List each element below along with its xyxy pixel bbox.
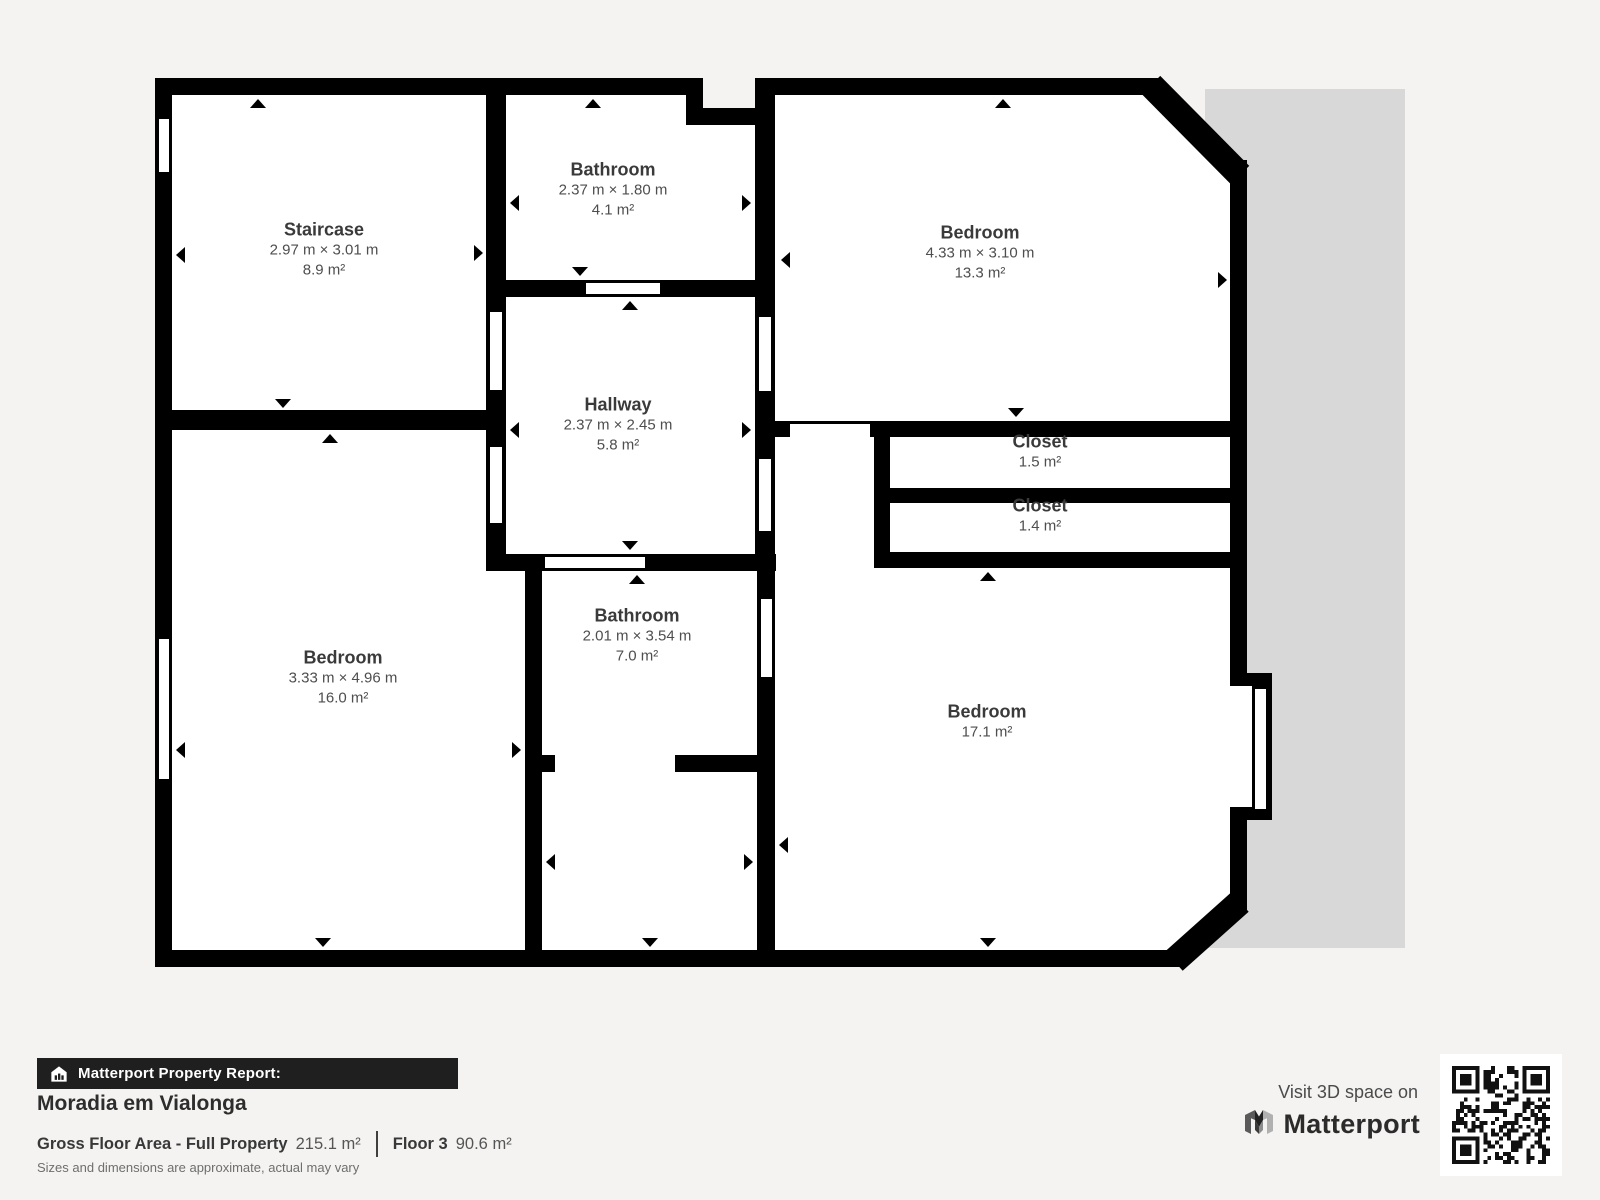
matterport-wordmark: Matterport: [1284, 1109, 1421, 1140]
opening-hallway-right-upper: [758, 316, 772, 392]
opening-hallway-left-upper: [489, 311, 503, 391]
floor-label: Floor 3: [393, 1135, 448, 1154]
opening-hallway-right-lower: [758, 458, 772, 532]
opening-hallway-left-lower: [489, 446, 503, 524]
report-banner-label: Matterport Property Report:: [78, 1065, 281, 1082]
qr-code: [1440, 1054, 1562, 1176]
window-bedroom-bay: [1254, 688, 1267, 810]
window-bedroom-left: [158, 638, 170, 780]
floor-value: 90.6 m²: [456, 1135, 512, 1154]
separator: [376, 1131, 378, 1157]
qr-pattern: [1452, 1066, 1550, 1164]
disclaimer-text: Sizes and dimensions are approximate, ac…: [37, 1160, 359, 1175]
floor-plan-page: Staircase 2.97 m × 3.01 m 8.9 m² Bathroo…: [0, 0, 1600, 1200]
gfa-value: 215.1 m²: [296, 1135, 361, 1154]
house-icon: [50, 1065, 68, 1083]
visit-3d-text: Visit 3D space on: [1118, 1082, 1418, 1103]
opening-bathroom-bedroom: [760, 598, 773, 678]
matterport-logo: Matterport: [1100, 1108, 1420, 1140]
floor-area-summary: Gross Floor Area - Full Property 215.1 m…: [37, 1131, 512, 1157]
report-banner: Matterport Property Report:: [37, 1058, 458, 1089]
floor-plan-drawing: [0, 0, 1600, 1200]
window-staircase: [158, 118, 170, 173]
property-name: Moradia em Vialonga: [37, 1092, 247, 1116]
matterport-logo-icon: [1243, 1108, 1275, 1140]
building-footprint: [155, 78, 1272, 967]
gfa-label: Gross Floor Area - Full Property: [37, 1135, 288, 1154]
